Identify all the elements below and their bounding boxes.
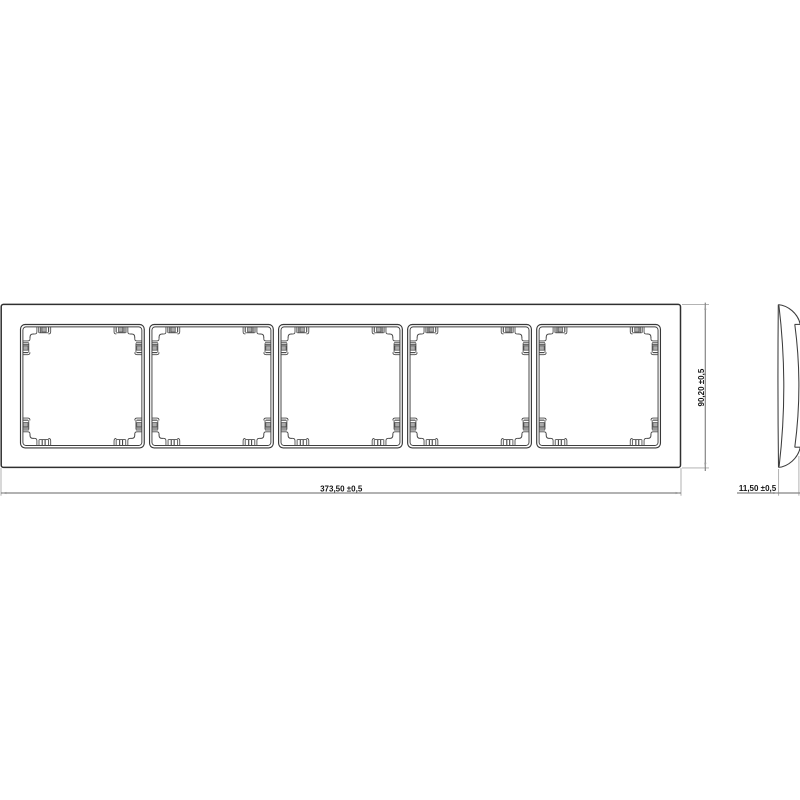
svg-text:90,20 ±0,5: 90,20 ±0,5 [697,368,706,406]
svg-text:373,50 ±0,5: 373,50 ±0,5 [320,484,363,493]
svg-text:11,50 ±0,5: 11,50 ±0,5 [739,484,777,493]
